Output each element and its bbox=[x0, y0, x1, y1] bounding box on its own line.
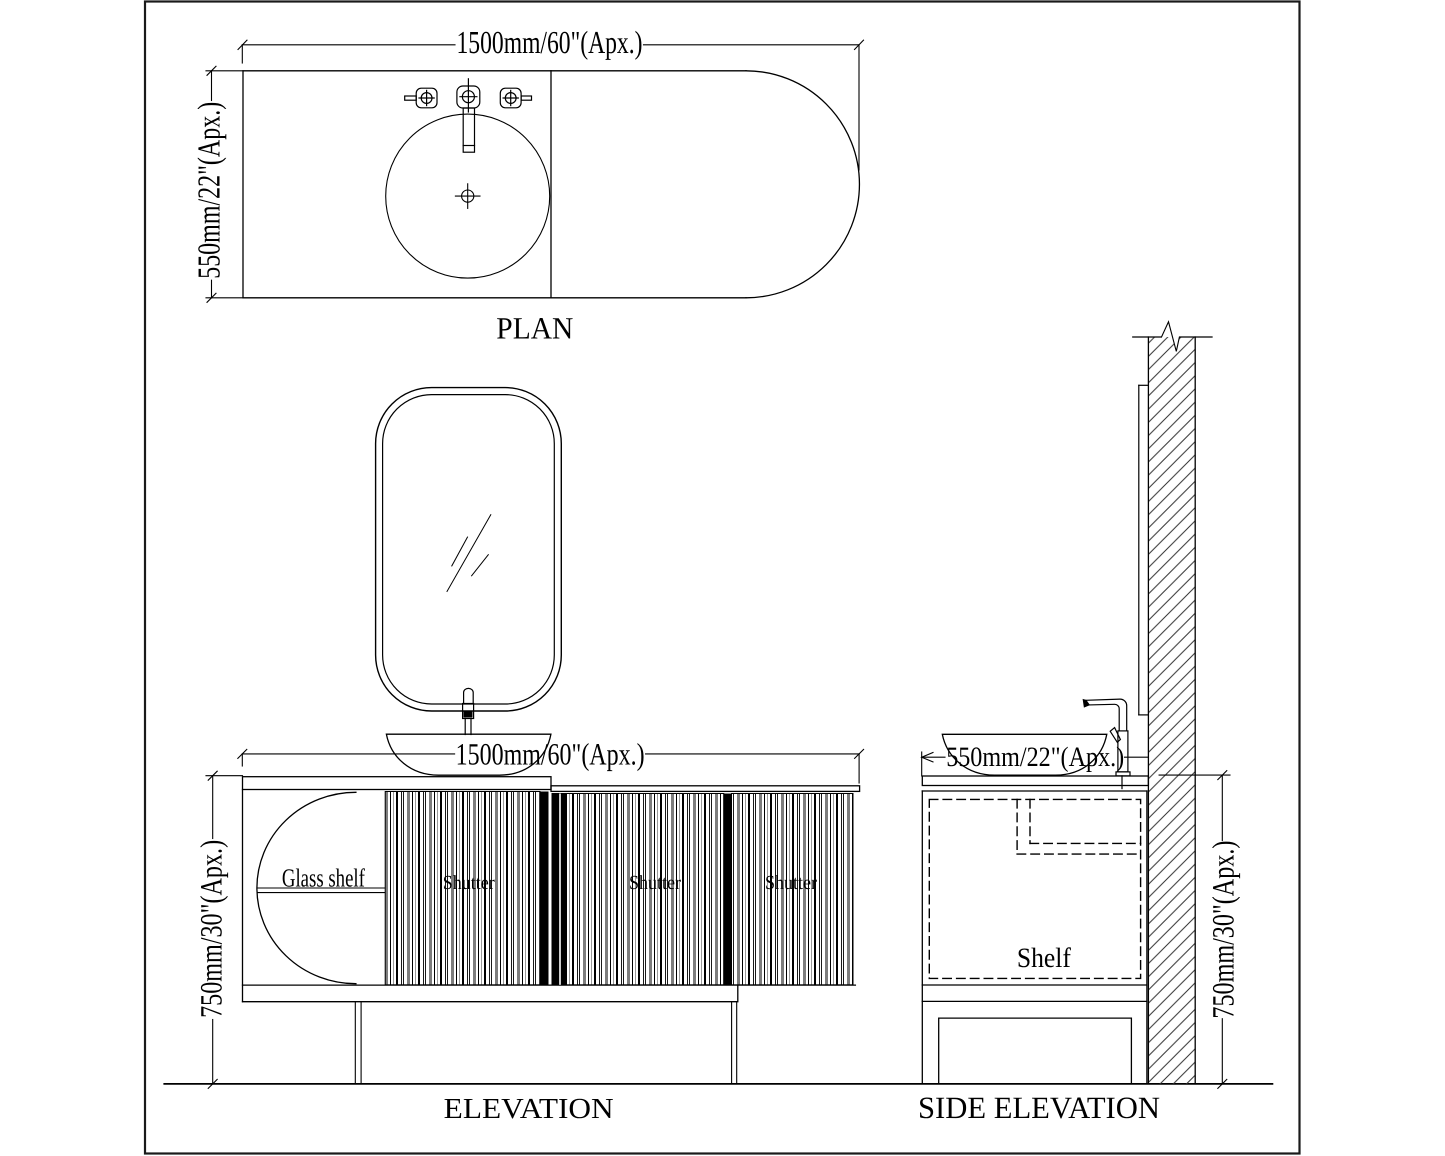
svg-text:1500mm/60"(Apx.): 1500mm/60"(Apx.) bbox=[457, 24, 643, 60]
svg-text:Shutter: Shutter bbox=[443, 872, 495, 894]
svg-text:750mm/30"(Apx.): 750mm/30"(Apx.) bbox=[194, 840, 229, 1018]
svg-text:Shelf: Shelf bbox=[1017, 943, 1072, 974]
svg-text:Shutter: Shutter bbox=[765, 872, 817, 894]
svg-text:Glass shelf: Glass shelf bbox=[282, 863, 365, 892]
svg-text:PLAN: PLAN bbox=[496, 311, 573, 346]
svg-text:1500mm/60"(Apx.): 1500mm/60"(Apx.) bbox=[456, 736, 645, 771]
svg-text:SIDE ELEVATION: SIDE ELEVATION bbox=[918, 1090, 1160, 1125]
svg-text:550mm/22"(Apx.): 550mm/22"(Apx.) bbox=[191, 102, 227, 279]
svg-text:750mm/30"(Apx.): 750mm/30"(Apx.) bbox=[1206, 841, 1241, 1019]
svg-text:Shutter: Shutter bbox=[629, 872, 681, 894]
svg-text:550mm/22"(Apx.): 550mm/22"(Apx.) bbox=[946, 742, 1124, 773]
svg-text:ELEVATION: ELEVATION bbox=[444, 1093, 614, 1125]
